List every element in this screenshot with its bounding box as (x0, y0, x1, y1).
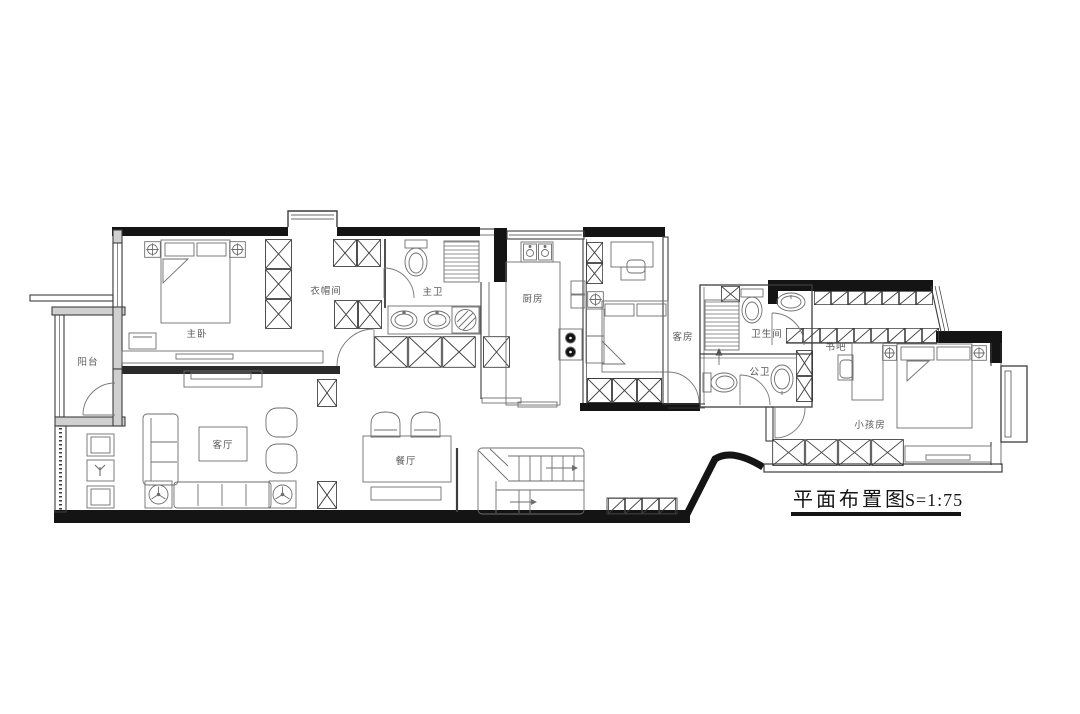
closet-cell (839, 440, 871, 466)
guest-east-wall (663, 237, 668, 404)
wall-top-mid (337, 227, 480, 236)
room-label-public-bath: 公卫 (749, 367, 770, 378)
shelf-cell (888, 328, 904, 342)
kitchen-sink (521, 242, 553, 262)
kids-bench (905, 446, 991, 462)
closet-cell (334, 301, 357, 329)
fridge-cabinet (586, 336, 604, 363)
diag-window-3 (939, 286, 949, 332)
sofa-left (143, 414, 178, 485)
shelf-cell (865, 291, 881, 304)
wall-guest-top (583, 227, 665, 237)
shelf-cell (871, 328, 887, 342)
wall-bath-stub (768, 291, 778, 304)
room-label-guest-room: 客房 (672, 331, 693, 343)
closet-cell (586, 263, 602, 283)
washing-machine-icon (452, 307, 479, 333)
wall-master-top (112, 227, 288, 236)
guest-lamp-icon (588, 292, 604, 308)
closet-cell (796, 377, 812, 402)
west-chair (87, 486, 114, 508)
nightstand-lamp-icon (145, 242, 161, 258)
closet-cell (588, 379, 612, 403)
dining-chair (411, 412, 440, 437)
pillar-cell (317, 380, 336, 407)
doors (83, 268, 805, 438)
wall-kids-top-corner (990, 331, 1002, 363)
shelf-cell (882, 291, 898, 304)
kids-bed (897, 344, 972, 428)
cloakroom-door (337, 329, 374, 366)
shelf-cell (820, 328, 836, 342)
toilet-icon (741, 289, 763, 323)
plant-stand (87, 460, 114, 481)
dining-chair (371, 412, 400, 437)
bay-window-glass (1005, 371, 1011, 437)
shelf-cell (848, 291, 864, 304)
bath-sink-icon (777, 293, 805, 311)
room-label-book-bar: 书吧 (825, 342, 846, 353)
room-label-master-bath: 主卫 (422, 286, 443, 298)
public-toilet-icon (703, 373, 737, 392)
floor-plan-canvas: 阳台 主卧 衣帽间 主卫 厨房 客房 卫生间 公卫 书吧 小孩房 客厅 餐厅 平… (0, 0, 1080, 714)
wall-kitchen-corner (494, 228, 507, 282)
room-label-cloakroom: 衣帽间 (310, 285, 342, 297)
kids-lamp-icon (883, 346, 897, 361)
room-label-living-room: 客厅 (212, 439, 233, 451)
bath-vent-louver (444, 241, 479, 282)
shelf-cell (837, 328, 853, 342)
shelf-cell (814, 291, 830, 304)
wall-bottom-main (54, 510, 690, 523)
entry-arrow-icon (716, 348, 723, 365)
shelf-cell (899, 291, 915, 304)
closet-cell (773, 440, 805, 466)
closet-cell (333, 240, 356, 267)
room-label-bathroom: 卫生间 (751, 328, 783, 340)
closet-cell (443, 337, 476, 368)
room-label-kitchen: 厨房 (522, 293, 543, 305)
closet-cell (613, 379, 637, 403)
closet-cell (375, 337, 408, 368)
closet-cell (266, 240, 292, 269)
master-bath-door (384, 268, 414, 298)
closet-cell (806, 440, 838, 466)
master-toilet-icon (405, 240, 427, 276)
vent-cell (721, 286, 739, 301)
shower-louver (705, 300, 739, 350)
kids-door-jamb (766, 407, 773, 441)
wall-below-balcony-door (113, 369, 122, 426)
wall-entry-diagonal (687, 455, 763, 514)
guest-desk (611, 242, 653, 280)
title-block: 平面布置图 S=1:75 (791, 488, 963, 516)
room-label-master-bedroom: 主卧 (186, 328, 207, 340)
shelf-cell (831, 291, 847, 304)
nightstand-lamp-icon (230, 242, 246, 258)
bedroom-console (122, 351, 323, 363)
room-label-dining-room: 餐厅 (395, 455, 416, 467)
tv-cabinet (184, 371, 262, 387)
room-label-kids-room: 小孩房 (854, 419, 886, 431)
closet-cell (358, 301, 381, 329)
left-wall-stub (30, 295, 113, 301)
closet-cell (266, 300, 292, 329)
shelf-cell (916, 291, 932, 304)
public-sink-icon (771, 365, 793, 395)
drawing-title: 平面布置图 (793, 488, 908, 511)
drawing-scale: S=1:75 (905, 490, 963, 510)
closet-cell (409, 337, 442, 368)
closet-cell (638, 379, 662, 403)
sofa-bottom (174, 482, 271, 508)
structural-walls (54, 227, 1002, 523)
sideboard (371, 487, 441, 500)
staircase (478, 448, 584, 514)
guest-room-door (668, 372, 699, 403)
closet-cell (586, 242, 602, 262)
title-underline (791, 512, 961, 516)
armchair (266, 408, 297, 437)
dresser (129, 333, 156, 349)
stove (559, 329, 582, 360)
shelf-cell (854, 328, 870, 342)
closet-cell (872, 440, 904, 466)
closet-cell (357, 240, 380, 267)
west-chair (87, 434, 114, 456)
shelf-cell (905, 328, 921, 342)
armchair (266, 444, 297, 473)
kids-lamp-icon (972, 346, 987, 361)
fridge-cabinet (586, 309, 604, 336)
closet-cell (266, 270, 292, 299)
balcony-door (83, 383, 115, 415)
public-bath-door (740, 375, 770, 405)
bathroom-door (772, 313, 804, 345)
kitchen-island (506, 262, 560, 405)
pillar-cell (317, 482, 336, 509)
side-table-fan-icon (269, 481, 296, 508)
kids-room-door (775, 408, 805, 438)
room-label-balcony: 阳台 (77, 356, 98, 368)
floor-plan-svg: 阳台 主卧 衣帽间 主卫 厨房 客房 卫生间 公卫 书吧 小孩房 客厅 餐厅 平… (0, 0, 1080, 714)
kitchen-sliding-door (482, 398, 557, 407)
master-bed (161, 240, 230, 323)
guest-bed (602, 301, 668, 372)
